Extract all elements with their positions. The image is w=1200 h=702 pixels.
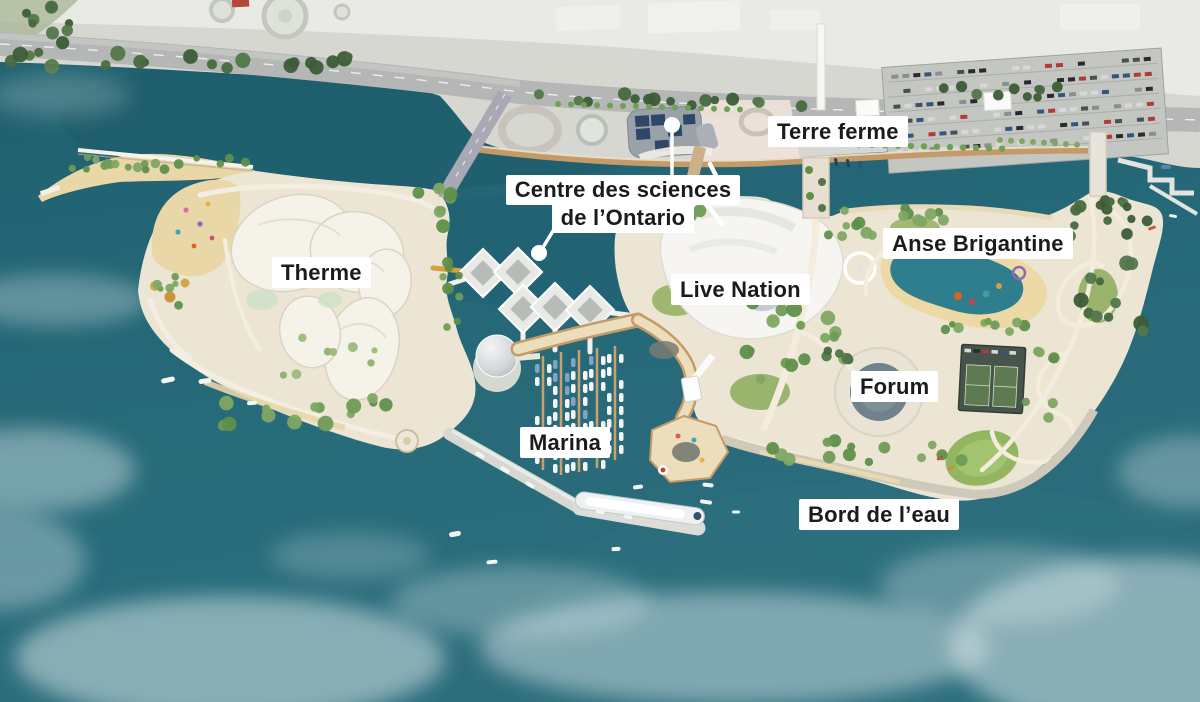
label-centre-des-sciences: Centre des sciences de l’Ontario bbox=[512, 175, 734, 233]
label-live-nation: Live Nation bbox=[671, 274, 810, 305]
site-plan-map: Terre ferme Centre des sciences de l’Ont… bbox=[0, 0, 1200, 702]
label-therme: Therme bbox=[272, 257, 371, 288]
label-centre-des-sciences-line2: de l’Ontario bbox=[552, 203, 695, 233]
label-terre-ferme: Terre ferme bbox=[768, 116, 908, 147]
label-bord-de-leau: Bord de l’eau bbox=[799, 499, 959, 530]
leader-dot-science-building bbox=[664, 117, 680, 133]
aerial-rendering bbox=[0, 0, 1200, 702]
leader-dot-science-pods bbox=[531, 245, 547, 261]
cinesphere-dome bbox=[476, 335, 518, 377]
sports-courts bbox=[958, 344, 1025, 413]
label-anse-brigantine: Anse Brigantine bbox=[883, 228, 1073, 259]
label-centre-des-sciences-line1: Centre des sciences bbox=[506, 175, 741, 205]
label-marina: Marina bbox=[520, 427, 610, 458]
label-forum: Forum bbox=[851, 371, 938, 402]
